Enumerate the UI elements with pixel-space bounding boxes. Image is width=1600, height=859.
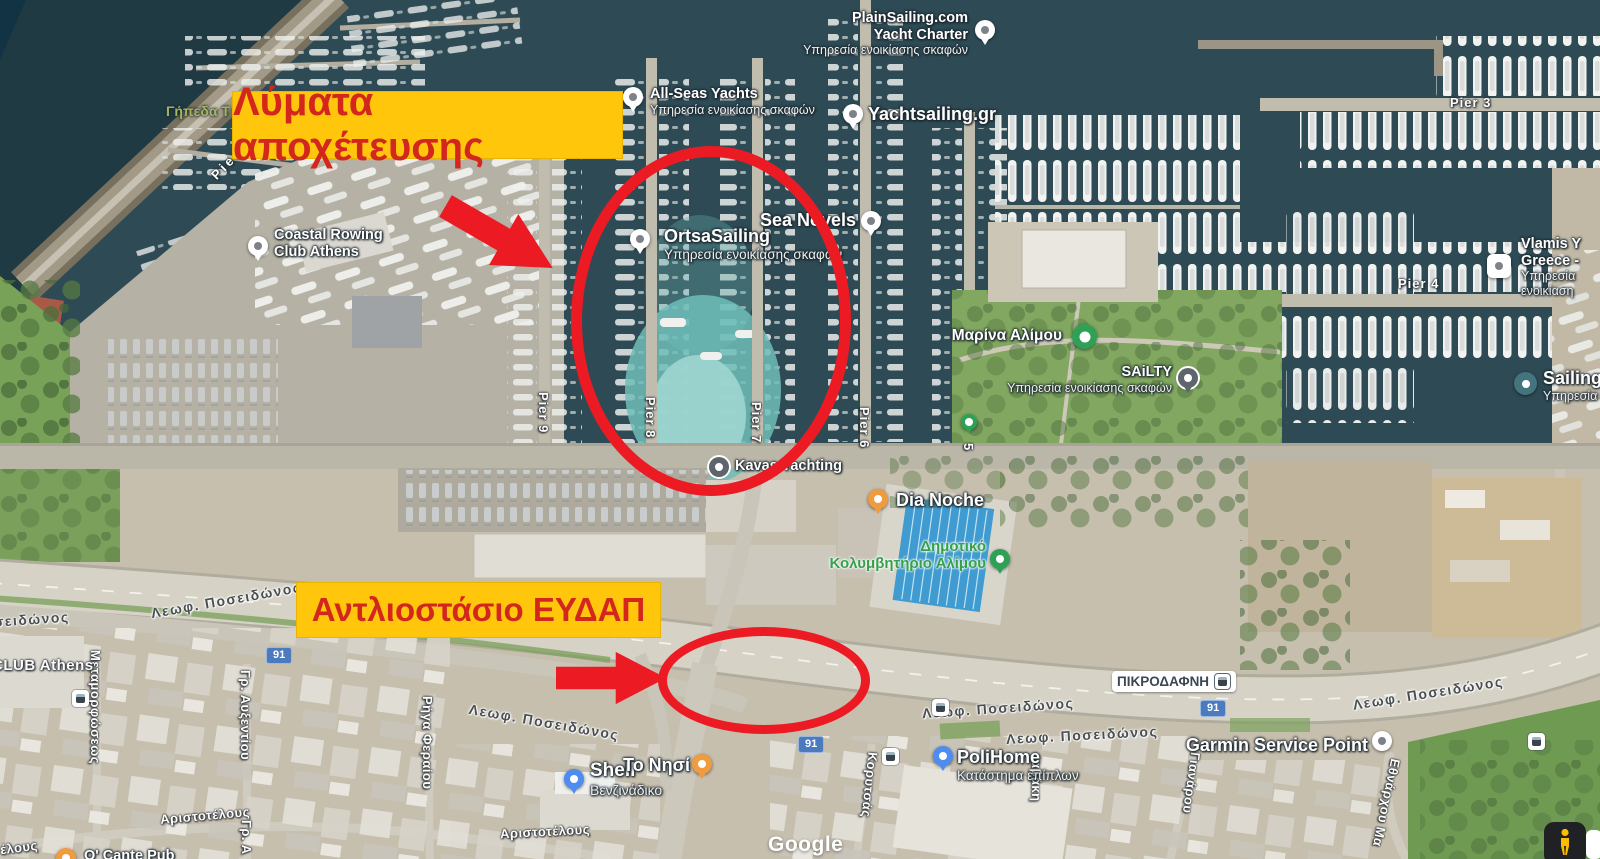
gipeda-label: Γήπεδα Τ xyxy=(166,103,230,119)
dimotiko-pin-icon[interactable] xyxy=(990,549,1010,569)
poi-dianoche[interactable]: Dia Noche xyxy=(896,490,984,511)
poi-vlamis[interactable]: Vlamis Y Greece - Υπηρεσία ενοικίαση xyxy=(1521,236,1581,298)
coastal-rowing-pin-icon[interactable] xyxy=(248,236,268,256)
poi-polihome[interactable]: PoliHome Κατάστημα επίπλων xyxy=(957,747,1079,783)
poi-sailingco[interactable]: SailingCo Υπηρεσία ε xyxy=(1543,368,1600,403)
pikrodafni-stop-label: ΠΙΚΡΟΔΑΦΝΗ xyxy=(1117,674,1209,689)
poi-garmin[interactable]: Garmin Service Point xyxy=(1186,735,1368,756)
pier-5-label: 5 xyxy=(961,443,976,451)
pier-4-label: Pier 4 xyxy=(1398,276,1439,291)
dianoche-pin-icon[interactable] xyxy=(868,489,888,509)
club-athens-label: CLUB Athens xyxy=(0,657,94,674)
google-logo[interactable]: Google xyxy=(768,833,843,857)
pegman-icon xyxy=(1557,828,1573,856)
vlamis-pin-icon[interactable] xyxy=(1487,254,1511,278)
route-91-badge: 91 xyxy=(1200,700,1226,717)
map-corner-control[interactable] xyxy=(1586,830,1600,859)
plainsailing-pin-icon[interactable] xyxy=(975,20,995,40)
map-viewport[interactable]: Pier E Pier 9 Pier 8 Pier 7 Pier 6 5 Pie… xyxy=(0,0,1600,859)
tonisi-pin-icon[interactable] xyxy=(692,754,712,774)
poi-marina-alimou[interactable]: Μαρίνα Αλίμου xyxy=(952,327,1062,345)
poi-coastal-rowing[interactable]: Coastal Rowing Club Athens xyxy=(274,227,383,260)
shell-pin-icon[interactable] xyxy=(564,769,584,789)
bus-stop-icon[interactable] xyxy=(72,690,89,707)
red-circle-sewage xyxy=(571,146,851,496)
sailingco-pin-icon[interactable] xyxy=(1514,372,1537,395)
annotation-pumping-station-label: Αντλιοστάσιο ΕΥΔΑΠ xyxy=(297,583,660,637)
annotation-sewage-label: Λύματα αποχέτευσης xyxy=(233,92,622,158)
street-gr-afxentiou: Γρ. Αυξεντίου xyxy=(238,670,253,760)
poi-dimotiko-kolymvitirio[interactable]: Δημοτικό Κολυμβητήριο Αλίμου xyxy=(830,538,986,573)
allseas-pin-icon[interactable] xyxy=(623,87,643,107)
pikrodafni-stop-badge[interactable]: ΠΙΚΡΟΔΑΦΝΗ xyxy=(1112,671,1236,692)
polihome-pin-icon[interactable] xyxy=(933,746,953,766)
seanovels-pin-icon[interactable] xyxy=(861,211,881,231)
pier-3-label: Pier 3 xyxy=(1450,95,1491,110)
pier-6-label: Pier 6 xyxy=(857,407,872,448)
poi-allseas[interactable]: All-Seas Yachts Υπηρεσία ενοικίασης σκαφ… xyxy=(650,86,815,117)
poi-yachtsailing[interactable]: Yachtsailing.gr xyxy=(868,104,996,125)
bus-stop-icon[interactable] xyxy=(932,699,949,716)
route-91-badge: 91 xyxy=(798,736,824,753)
garmin-pin-icon[interactable] xyxy=(1372,731,1392,751)
red-circle-pumping-station xyxy=(658,627,870,734)
poi-tonisi[interactable]: Το Νησί xyxy=(623,755,690,776)
green-poi-pin-icon[interactable] xyxy=(961,414,977,430)
pegman-control[interactable] xyxy=(1544,822,1586,859)
bus-icon xyxy=(1214,673,1231,690)
yachtsailing-pin-icon[interactable] xyxy=(843,104,863,124)
poi-sailty[interactable]: SAiLTY Υπηρεσία ενοικίασης σκαφών xyxy=(1007,364,1172,395)
poi-plainsailing[interactable]: PlainSailing.com Yacht Charter Υπηρεσία … xyxy=(803,10,968,58)
street-gr-a-partial: Γρ. Α xyxy=(239,820,254,855)
poi-ocante[interactable]: O' Cante Pub xyxy=(84,848,174,859)
bus-stop-icon[interactable] xyxy=(882,748,899,765)
bus-stop-icon[interactable] xyxy=(1528,733,1545,750)
marina-alimou-icon[interactable] xyxy=(1072,324,1097,349)
route-91-badge: 91 xyxy=(266,647,292,664)
street-riga-feraiou: Ρήγα Φεραίου xyxy=(420,696,435,789)
red-arrow-to-pumping-station xyxy=(556,650,668,706)
pier-9-label: Pier 9 xyxy=(536,392,551,433)
sailty-pin-icon[interactable] xyxy=(1178,368,1198,388)
